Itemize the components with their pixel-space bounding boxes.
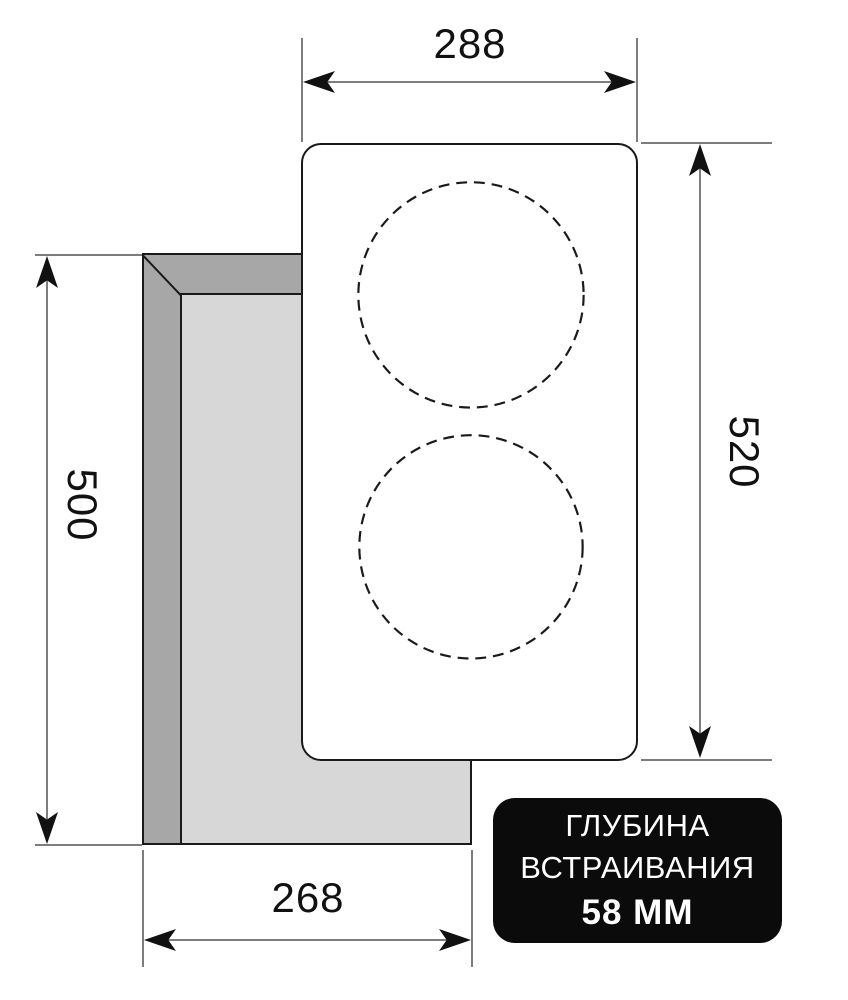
badge-line-2: ВСТРАИВАНИЯ — [520, 847, 754, 889]
dim-bottom-value: 268 — [271, 874, 344, 922]
dim-right-line — [699, 147, 701, 755]
badge-line-1: ГЛУБИНА — [565, 805, 709, 847]
dim-top-value: 288 — [433, 20, 506, 68]
installation-depth-badge: ГЛУБИНА ВСТРАИВАНИЯ 58 ММ — [493, 798, 782, 943]
dim-right-extension-top — [641, 142, 772, 144]
dim-bottom-extension-left — [142, 850, 144, 967]
diagram-canvas: 288 520 500 268 ГЛУБИНА ВСТРАИВАНИЯ 58 М… — [0, 0, 848, 1000]
dim-right-extension-bottom — [641, 759, 772, 761]
dim-left-extension-top — [35, 254, 142, 256]
burner-circle-top — [358, 182, 583, 407]
badge-depth-value: 58 ММ — [582, 889, 694, 937]
dim-left-extension-bottom — [35, 844, 142, 846]
dim-bottom-extension-right — [471, 850, 473, 967]
burner-circle-bottom — [359, 435, 582, 658]
dim-left-line — [46, 259, 48, 841]
dim-top-line — [306, 81, 633, 83]
burners-layer — [303, 145, 636, 759]
dim-top-extension-right — [636, 38, 638, 142]
cooktop-panel — [301, 143, 638, 761]
dim-left-value: 500 — [58, 468, 106, 541]
dim-top-extension-left — [301, 38, 303, 142]
dim-bottom-line — [147, 939, 468, 941]
dim-right-value: 520 — [720, 415, 768, 488]
